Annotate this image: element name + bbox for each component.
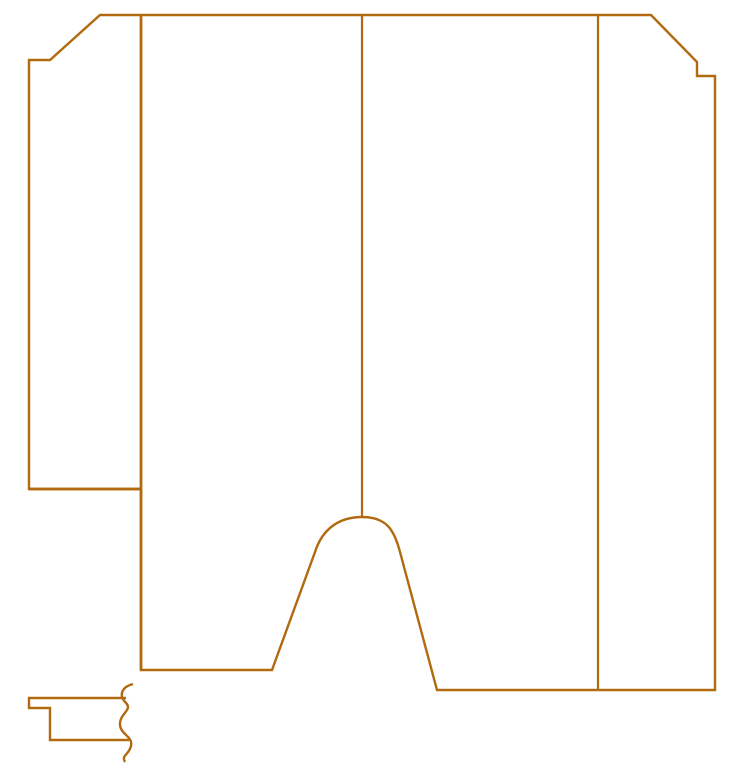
break-line-squiggle (120, 684, 133, 762)
pattern-drawing-svg (0, 0, 734, 767)
detail-piece-outline (29, 698, 129, 740)
main-panel-outline (29, 15, 715, 690)
drawing-canvas (0, 0, 734, 767)
